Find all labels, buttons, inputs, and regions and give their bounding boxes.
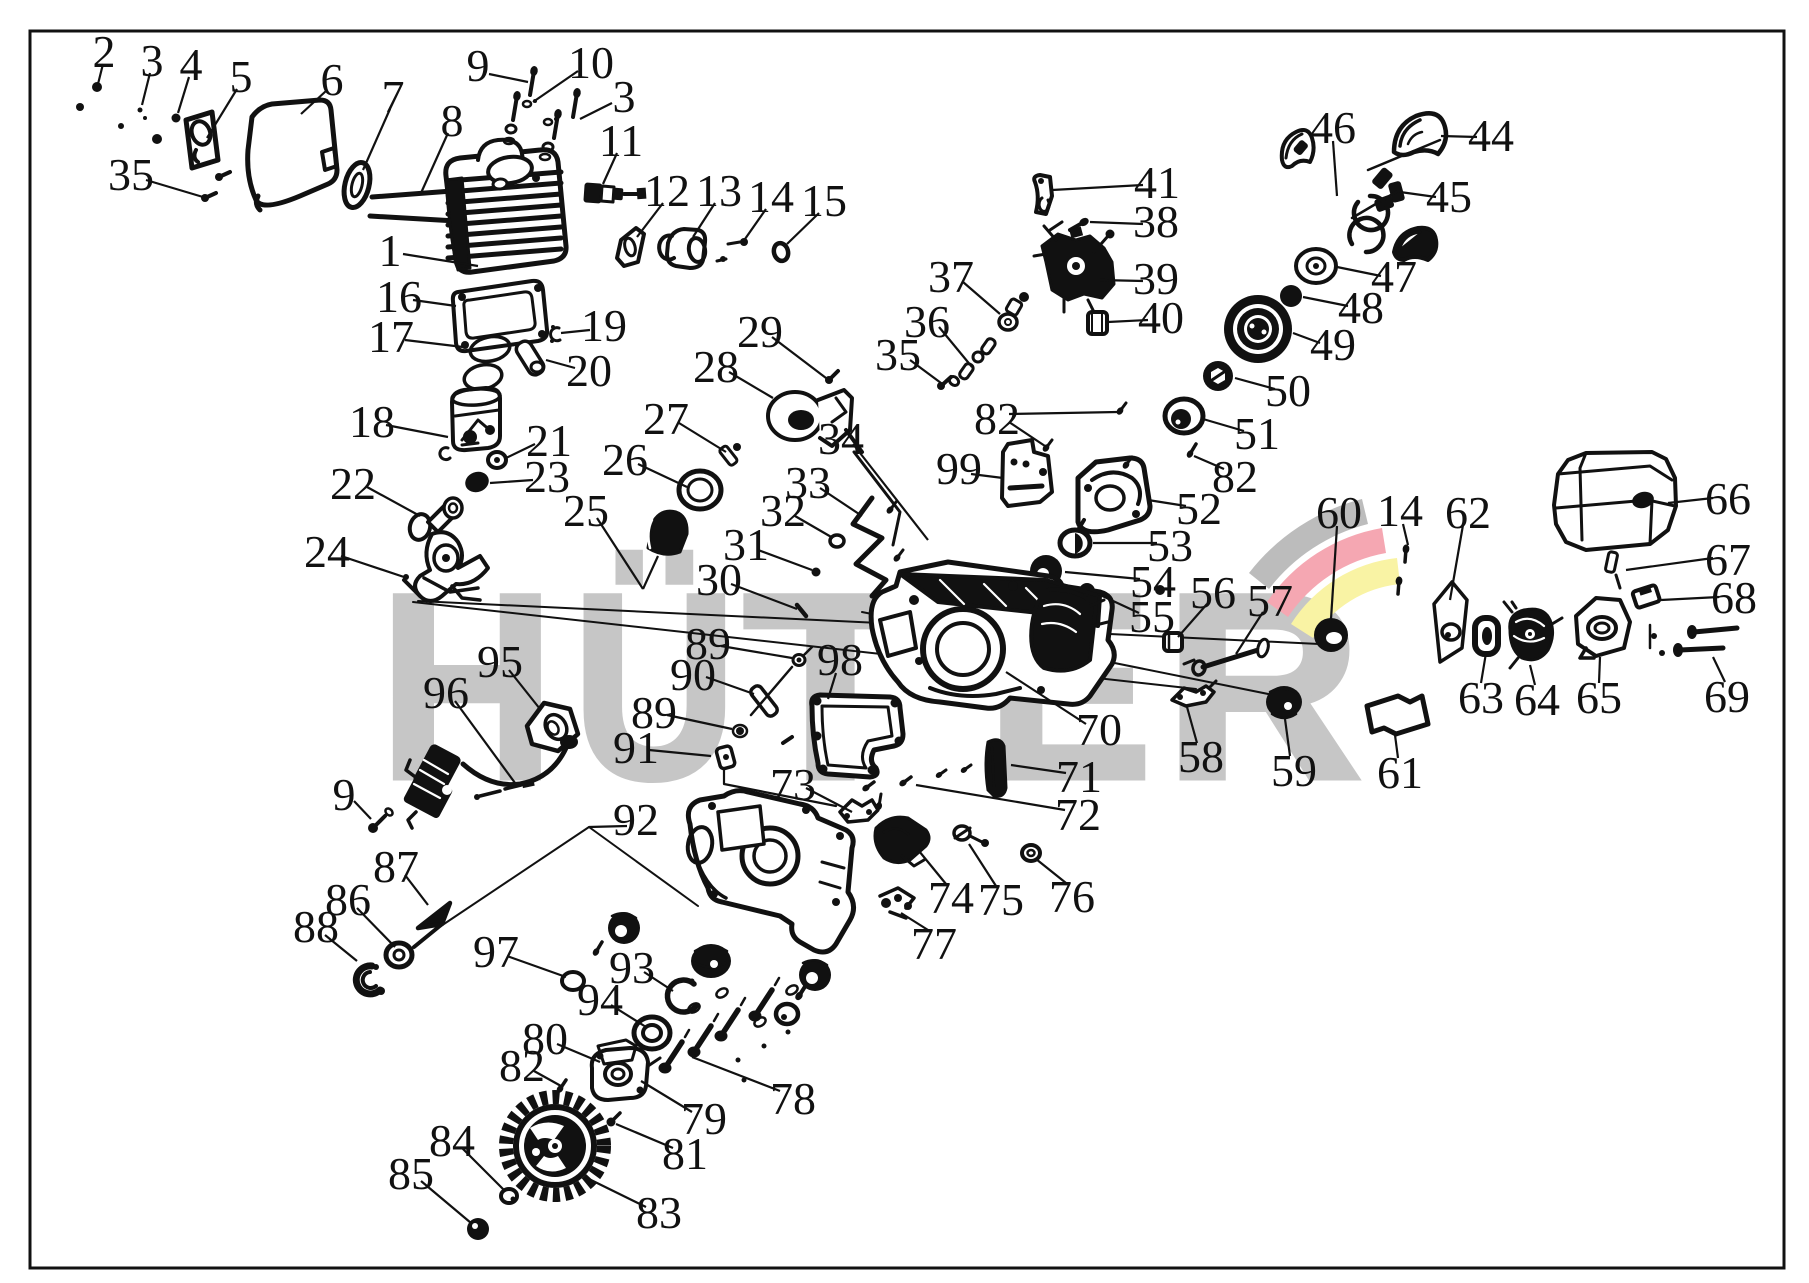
svg-text:7: 7 bbox=[382, 71, 405, 122]
svg-text:18: 18 bbox=[349, 396, 395, 447]
svg-text:91: 91 bbox=[613, 722, 659, 773]
svg-text:34: 34 bbox=[818, 413, 864, 464]
svg-text:62: 62 bbox=[1445, 487, 1491, 538]
svg-text:26: 26 bbox=[602, 434, 648, 485]
svg-text:3: 3 bbox=[141, 35, 164, 86]
svg-text:99: 99 bbox=[936, 443, 982, 494]
svg-text:2: 2 bbox=[93, 26, 116, 77]
svg-text:19: 19 bbox=[581, 300, 627, 351]
svg-text:94: 94 bbox=[577, 974, 623, 1025]
svg-text:64: 64 bbox=[1514, 674, 1560, 725]
svg-text:1: 1 bbox=[379, 225, 402, 276]
svg-text:59: 59 bbox=[1271, 745, 1317, 796]
svg-text:12: 12 bbox=[644, 165, 690, 216]
svg-text:97: 97 bbox=[473, 926, 519, 977]
svg-text:9: 9 bbox=[333, 769, 356, 820]
svg-text:10: 10 bbox=[568, 37, 614, 88]
svg-text:69: 69 bbox=[1704, 671, 1750, 722]
svg-text:37: 37 bbox=[928, 251, 974, 302]
svg-text:24: 24 bbox=[304, 526, 350, 577]
svg-text:6: 6 bbox=[321, 54, 344, 105]
svg-text:98: 98 bbox=[817, 634, 863, 685]
svg-text:14: 14 bbox=[1377, 485, 1423, 536]
svg-text:14: 14 bbox=[748, 171, 794, 222]
svg-text:82: 82 bbox=[974, 393, 1020, 444]
svg-text:72: 72 bbox=[1055, 789, 1101, 840]
svg-text:57: 57 bbox=[1247, 575, 1293, 626]
svg-text:84: 84 bbox=[429, 1115, 475, 1166]
svg-text:25: 25 bbox=[563, 485, 609, 536]
svg-text:11: 11 bbox=[599, 115, 643, 166]
svg-text:81: 81 bbox=[662, 1128, 708, 1179]
svg-text:9: 9 bbox=[467, 40, 490, 91]
svg-text:78: 78 bbox=[770, 1073, 816, 1124]
svg-text:8: 8 bbox=[441, 95, 464, 146]
svg-text:55: 55 bbox=[1129, 591, 1175, 642]
svg-text:40: 40 bbox=[1138, 292, 1184, 343]
svg-text:77: 77 bbox=[911, 918, 957, 969]
svg-text:74: 74 bbox=[928, 872, 974, 923]
svg-text:27: 27 bbox=[643, 393, 689, 444]
svg-text:22: 22 bbox=[330, 458, 376, 509]
svg-text:20: 20 bbox=[566, 345, 612, 396]
svg-text:85: 85 bbox=[388, 1148, 434, 1199]
svg-text:88: 88 bbox=[293, 901, 339, 952]
svg-text:15: 15 bbox=[801, 175, 847, 226]
svg-text:70: 70 bbox=[1076, 704, 1122, 755]
svg-text:58: 58 bbox=[1178, 731, 1224, 782]
svg-text:83: 83 bbox=[636, 1187, 682, 1238]
svg-text:13: 13 bbox=[696, 165, 742, 216]
svg-text:56: 56 bbox=[1190, 567, 1236, 618]
svg-text:44: 44 bbox=[1468, 110, 1514, 161]
svg-text:75: 75 bbox=[978, 874, 1024, 925]
svg-text:82: 82 bbox=[499, 1040, 545, 1091]
svg-text:29: 29 bbox=[737, 306, 783, 357]
svg-text:60: 60 bbox=[1316, 487, 1362, 538]
svg-text:49: 49 bbox=[1310, 319, 1356, 370]
svg-text:38: 38 bbox=[1133, 196, 1179, 247]
svg-text:92: 92 bbox=[613, 794, 659, 845]
svg-text:36: 36 bbox=[904, 296, 950, 347]
svg-text:73: 73 bbox=[770, 759, 816, 810]
svg-text:17: 17 bbox=[368, 311, 414, 362]
svg-text:28: 28 bbox=[693, 341, 739, 392]
svg-text:33: 33 bbox=[785, 457, 831, 508]
svg-text:76: 76 bbox=[1049, 871, 1095, 922]
svg-text:35: 35 bbox=[108, 149, 154, 200]
svg-text:4: 4 bbox=[180, 39, 203, 90]
svg-text:61: 61 bbox=[1377, 747, 1423, 798]
